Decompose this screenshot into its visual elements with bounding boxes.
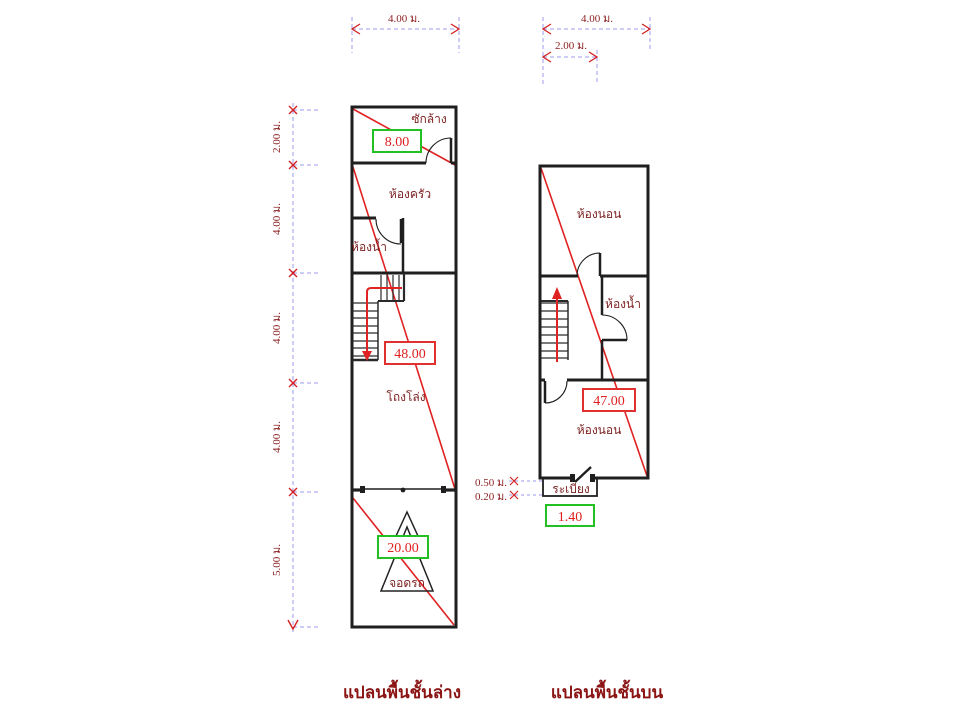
floor2-area-boxes: 47.00 1.40: [546, 389, 635, 526]
label-laundry: ซักล้าง: [411, 112, 446, 126]
caption-floor2: แปลนพื้นชั้นบน: [551, 679, 664, 702]
door-arc-bath2: [602, 315, 627, 340]
door-arc-laundry: [426, 138, 451, 163]
dim-left-5m: 5.00 ม.: [271, 544, 283, 576]
label-bathroom1: ห้องน้ำ: [351, 238, 387, 254]
left-dimension-labels: 2.00 ม. 4.00 ม. 4.00 ม. 4.00 ม. 5.00 ม.: [271, 121, 283, 576]
top-dimension-floor1: 4.00 ม.: [352, 13, 459, 53]
label-hall: โถงโล่ง: [386, 390, 425, 404]
dim-top-right-2m: 2.00 ม.: [555, 40, 587, 52]
door-arc-bed1: [577, 253, 600, 276]
dim-left-2m: 2.00 ม.: [271, 121, 283, 153]
stair-arrow-head: [552, 287, 562, 299]
red-diagonal-parking: [353, 498, 454, 625]
balcony-dimensions: 0.50 ม. 0.20 ม.: [475, 477, 543, 503]
label-kitchen: ห้องครัว: [389, 187, 431, 201]
door-post: [360, 486, 365, 493]
label-bedroom1: ห้องนอน: [577, 207, 622, 221]
label-parking: จอดรถ: [389, 576, 425, 590]
plan-svg: 2.00 ม. 4.00 ม. 4.00 ม. 4.00 ม. 5.00 ม. …: [0, 0, 960, 720]
dim-balcony-020: 0.20 ม.: [475, 491, 507, 503]
label-bedroom2: ห้องนอน: [577, 423, 622, 437]
area-value-laundry: 8.00: [385, 135, 410, 150]
dim-left-4m-a: 4.00 ม.: [271, 203, 283, 235]
floor-plan-drawing: 2.00 ม. 4.00 ม. 4.00 ม. 4.00 ม. 5.00 ม. …: [0, 0, 960, 720]
dim-balcony-050: 0.50 ม.: [475, 477, 507, 489]
floor2-stairs: [541, 301, 568, 360]
label-balcony: ระเบียง: [552, 482, 590, 496]
left-dimension-chain: [293, 103, 321, 633]
dim-left-4m-c: 4.00 ม.: [271, 421, 283, 453]
dim-left-4m-b: 4.00 ม.: [271, 312, 283, 344]
red-diagonal-hall: [353, 167, 455, 489]
left-dimension-ticks: [288, 106, 298, 629]
area-value-total: 47.00: [593, 394, 625, 409]
label-bathroom2: ห้องน้ำ: [605, 295, 641, 311]
sliding-door-wall: [352, 486, 456, 493]
door-post: [590, 474, 595, 482]
dim-top-left-4m: 4.00 ม.: [388, 13, 420, 25]
door-center-dot: [401, 488, 406, 493]
floor1-plan: 8.00 48.00 20.00 ซักล้าง ห้องครัว ห้องน้…: [351, 107, 456, 627]
top-dimension-floor2: 4.00 ม. 2.00 ม.: [543, 13, 650, 85]
dim-top-right-4m: 4.00 ม.: [581, 13, 613, 25]
area-value-parking: 20.00: [387, 541, 419, 556]
floor2-plan: 47.00 1.40 ห้องนอน ห้องน้ำ ห้องนอน ระเบี…: [540, 166, 648, 526]
caption-floor1: แปลนพื้นชั้นล่าง: [343, 679, 461, 702]
door-post: [441, 486, 446, 493]
area-value-hall: 48.00: [394, 347, 426, 362]
area-value-balcony: 1.40: [558, 510, 583, 525]
door-arc-bed2: [545, 381, 567, 403]
door-post: [570, 474, 575, 482]
